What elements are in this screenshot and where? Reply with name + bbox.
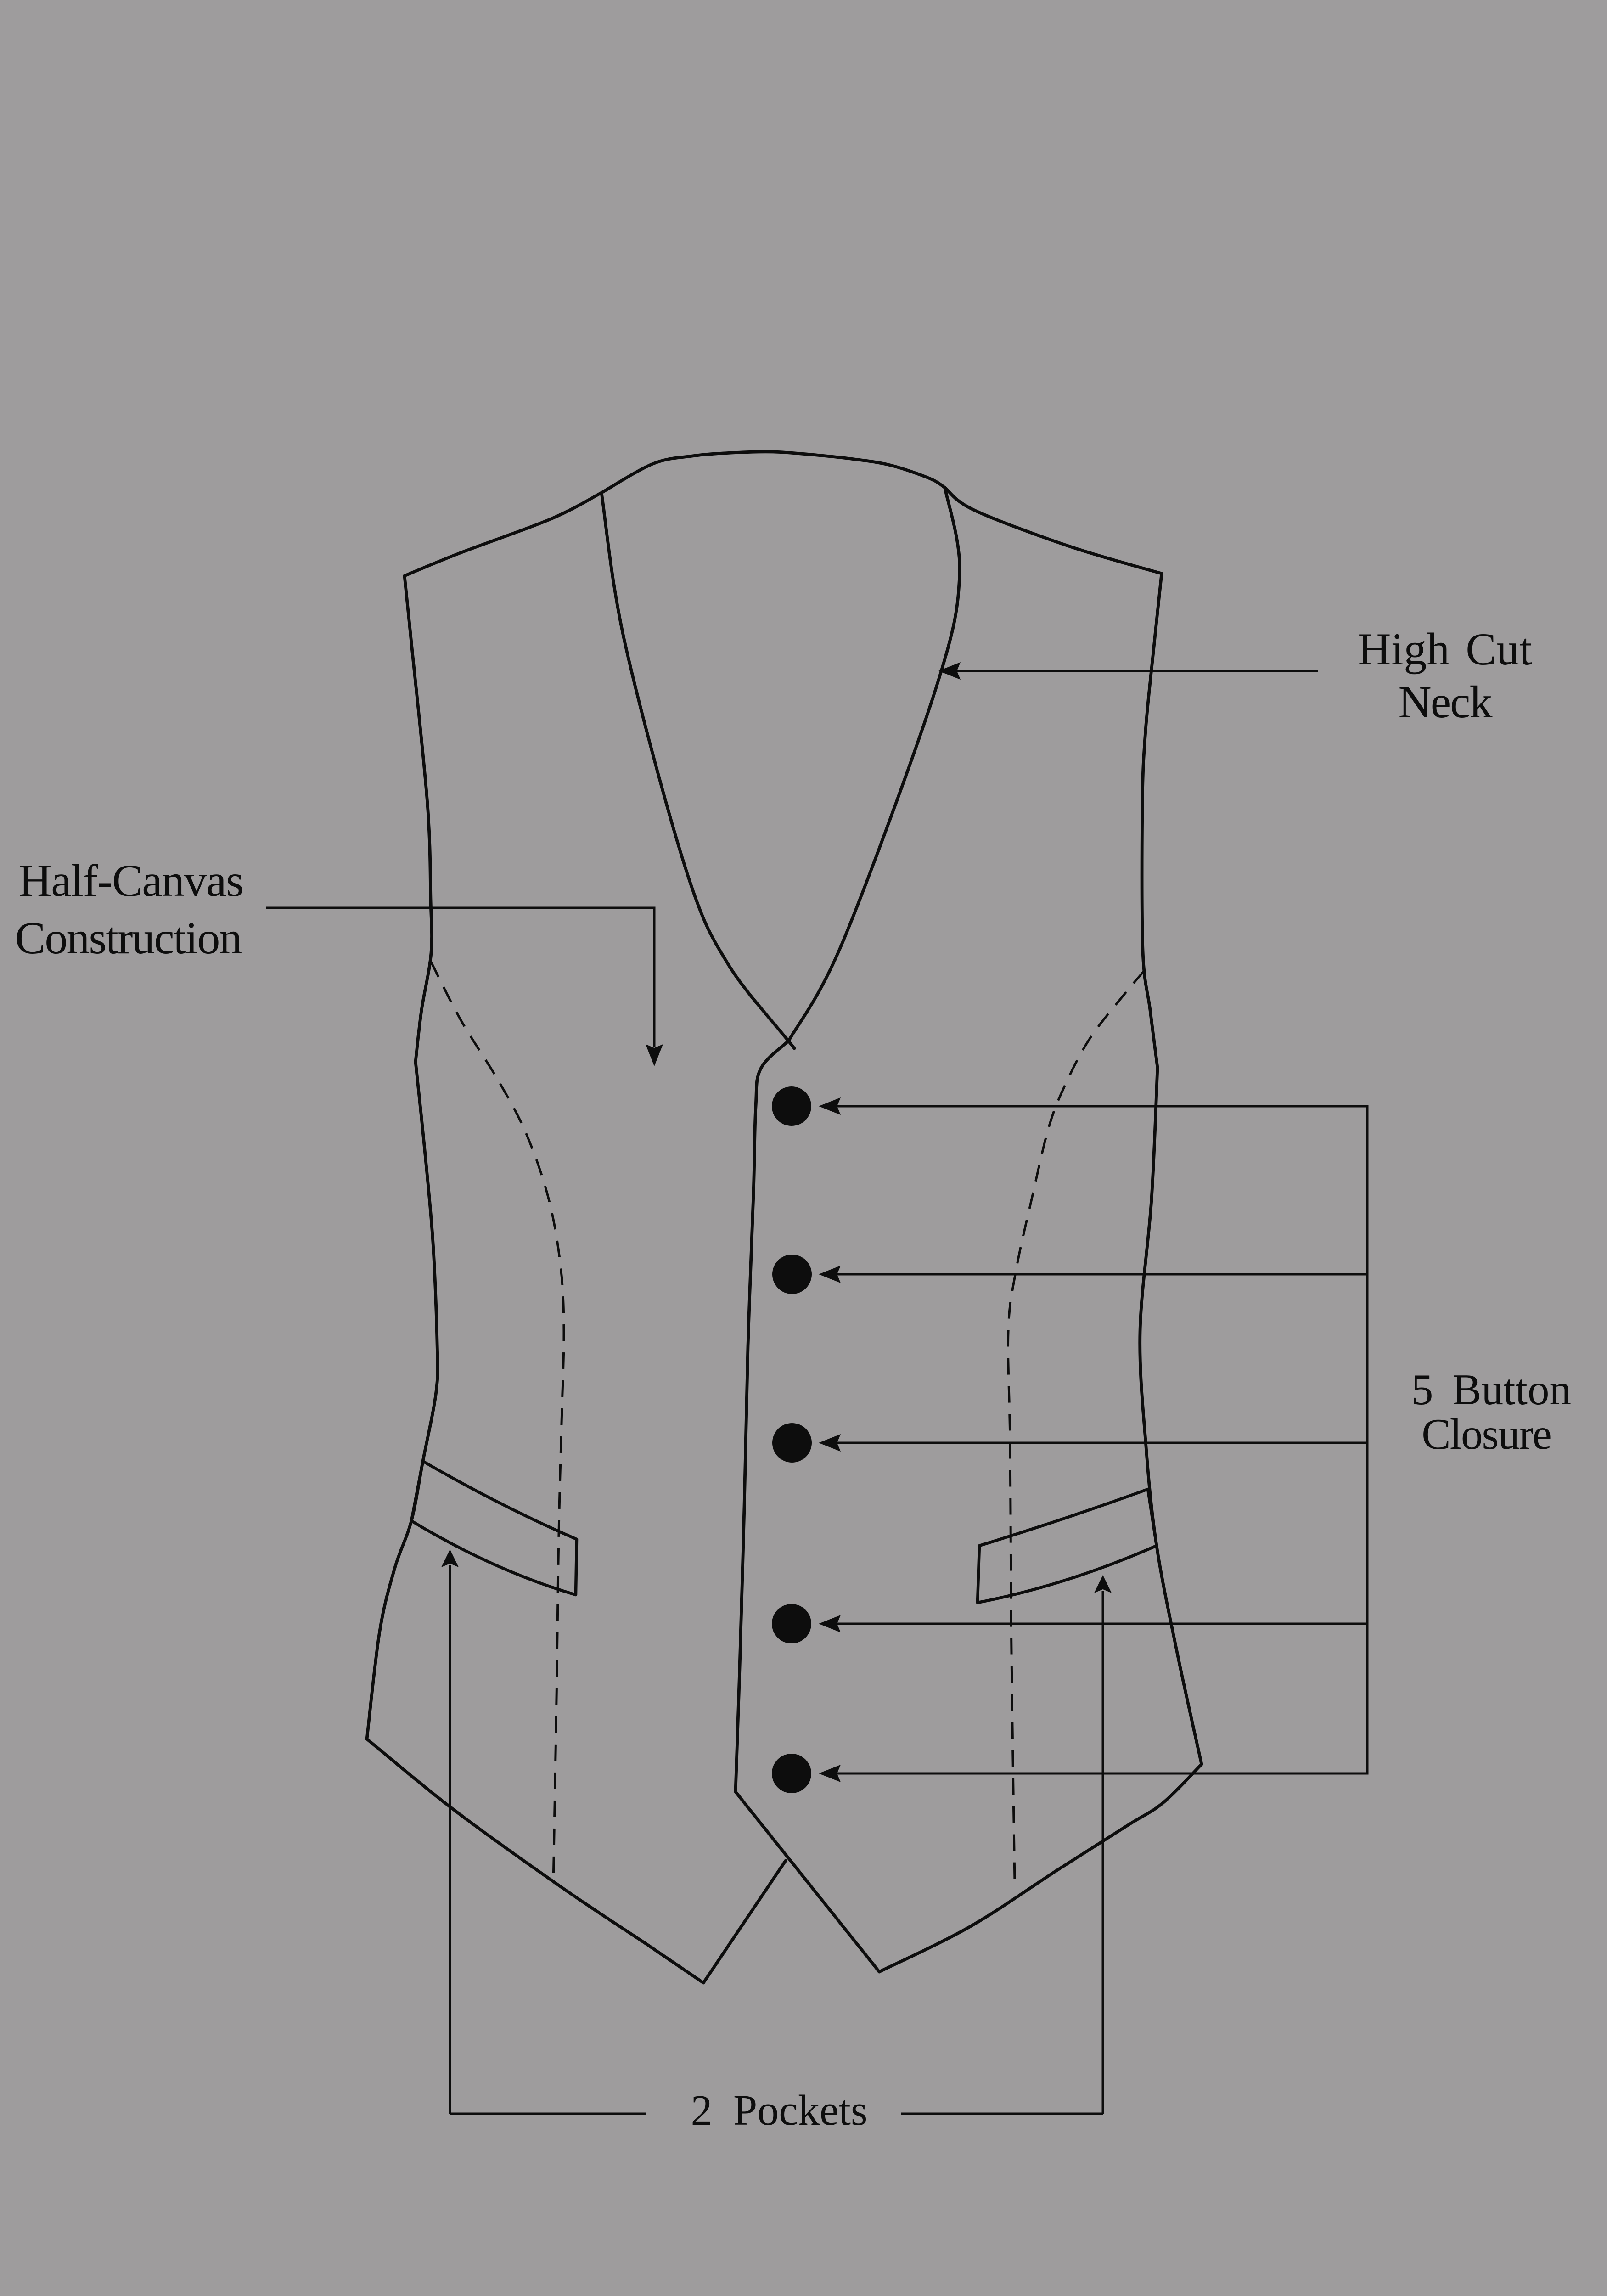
svg-text:5 Button: 5 Button: [1411, 1365, 1571, 1414]
svg-text:Neck: Neck: [1399, 676, 1493, 727]
svg-text:Construction: Construction: [15, 912, 242, 963]
svg-text:Half-Canvas: Half-Canvas: [19, 855, 243, 906]
svg-text:High Cut: High Cut: [1358, 624, 1532, 675]
svg-text:2 Pockets: 2 Pockets: [691, 2087, 868, 2134]
svg-text:Closure: Closure: [1422, 1410, 1551, 1458]
